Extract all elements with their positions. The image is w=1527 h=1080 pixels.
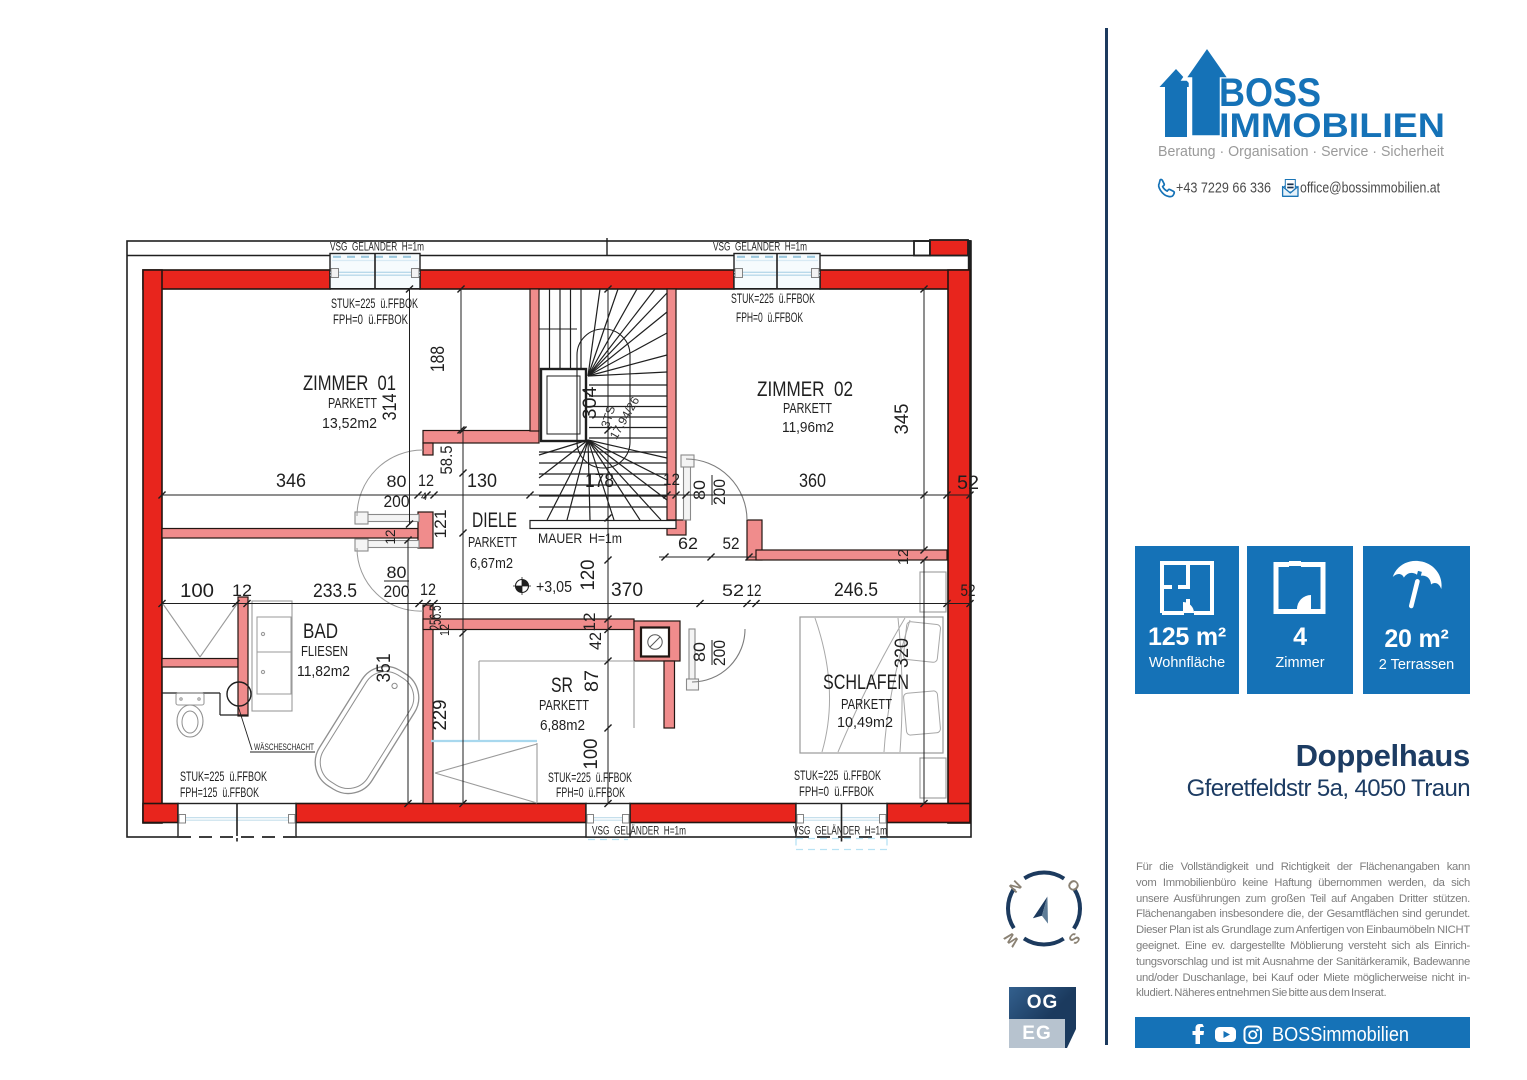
svg-text:O: O (1063, 877, 1082, 896)
svg-text:VSG GELÄNDER H=1m: VSG GELÄNDER H=1m (713, 242, 807, 254)
svg-text:62: 62 (678, 534, 698, 553)
svg-text:PARKETT: PARKETT (328, 396, 377, 412)
svg-text:SR: SR (551, 674, 573, 697)
svg-text:52: 52 (723, 534, 740, 553)
svg-text:233.5: 233.5 (313, 581, 357, 602)
svg-text:+43 7229 66 336: +43 7229 66 336 (1176, 180, 1271, 197)
svg-text:6,88m2: 6,88m2 (540, 718, 585, 734)
svg-text:12: 12 (747, 581, 762, 600)
svg-text:BOSSimmobilien: BOSSimmobilien (1272, 1023, 1409, 1046)
svg-text:IMMOBILIEN: IMMOBILIEN (1219, 107, 1445, 145)
svg-text:FPH=0 ü.FFBOK: FPH=0 ü.FFBOK (333, 312, 408, 327)
svg-text:FPH=0 ü.FFBOK: FPH=0 ü.FFBOK (736, 310, 803, 325)
svg-text:80: 80 (690, 642, 709, 662)
svg-text:10,49m2: 10,49m2 (837, 715, 893, 731)
svg-text:100: 100 (180, 581, 214, 602)
svg-text:345: 345 (892, 404, 913, 435)
svg-text:80: 80 (690, 480, 709, 500)
svg-text:200: 200 (710, 479, 729, 505)
svg-text:178: 178 (585, 471, 614, 492)
svg-text:VSG GELÄNDER H=1m: VSG GELÄNDER H=1m (330, 242, 424, 254)
svg-text:PARKETT: PARKETT (783, 401, 832, 417)
svg-text:188: 188 (428, 346, 449, 372)
svg-text:S: S (1065, 929, 1083, 947)
svg-text:121: 121 (431, 510, 450, 539)
svg-text:PARKETT: PARKETT (539, 698, 589, 714)
svg-text:52: 52 (722, 581, 744, 600)
svg-text:200: 200 (384, 492, 410, 511)
svg-text:MAUER H=1m: MAUER H=1m (538, 531, 622, 546)
svg-text:office@bossimmobilien.at: office@bossimmobilien.at (1300, 180, 1441, 197)
svg-text:12: 12 (663, 470, 680, 489)
svg-text:VSG GELÄNDER H=1m: VSG GELÄNDER H=1m (793, 826, 887, 838)
svg-text:STUK=225 ü.FFBOK: STUK=225 ü.FFBOK (331, 296, 418, 311)
svg-text:87: 87 (582, 670, 603, 692)
svg-text:FPH=0 ü.FFBOK: FPH=0 ü.FFBOK (556, 785, 625, 800)
svg-text:12: 12 (382, 529, 398, 544)
svg-text:12: 12 (420, 580, 436, 599)
svg-text:58.5: 58.5 (437, 446, 456, 475)
svg-text:52: 52 (957, 473, 979, 494)
svg-text:100: 100 (581, 739, 602, 770)
svg-text:52: 52 (961, 581, 976, 600)
svg-text:Beratung · Organisation · Serv: Beratung · Organisation · Service · Sich… (1158, 144, 1444, 160)
svg-text:130: 130 (467, 471, 497, 492)
svg-text:STUK=225 ü.FFBOK: STUK=225 ü.FFBOK (794, 768, 881, 783)
svg-text:13,52m2: 13,52m2 (322, 416, 377, 432)
svg-text:PARKETT: PARKETT (468, 535, 517, 551)
svg-text:12: 12 (580, 613, 599, 632)
svg-text:229: 229 (430, 700, 451, 731)
svg-text:200: 200 (384, 582, 410, 601)
svg-text:STUK=225 ü.FFBOK: STUK=225 ü.FFBOK (548, 770, 632, 785)
svg-text:STUK=225 ü.FFBOK: STUK=225 ü.FFBOK (180, 769, 267, 784)
svg-text:VSG GELÄNDER H=1m: VSG GELÄNDER H=1m (592, 826, 686, 838)
svg-text:ZIMMER 02: ZIMMER 02 (757, 378, 853, 401)
svg-text:SCHLAFEN: SCHLAFEN (823, 671, 909, 694)
svg-text:120: 120 (578, 560, 599, 591)
svg-text:42: 42 (586, 632, 605, 650)
svg-text:320: 320 (892, 638, 913, 668)
svg-text:11,82m2: 11,82m2 (297, 664, 350, 680)
svg-text:DIELE: DIELE (472, 509, 517, 532)
svg-text:12: 12 (437, 624, 452, 636)
svg-text:+3,05: +3,05 (536, 579, 572, 596)
svg-text:200: 200 (710, 640, 729, 666)
svg-text:4: 4 (421, 491, 427, 503)
svg-text:370: 370 (611, 580, 643, 601)
svg-text:11,96m2: 11,96m2 (782, 420, 834, 436)
svg-text:246.5: 246.5 (834, 580, 878, 601)
svg-text:ZIMMER 01: ZIMMER 01 (303, 372, 396, 395)
svg-text:80: 80 (387, 472, 407, 491)
svg-text:314: 314 (380, 393, 401, 420)
svg-text:PARKETT: PARKETT (841, 697, 892, 713)
svg-text:FLIESEN: FLIESEN (301, 644, 348, 660)
svg-text:80: 80 (387, 563, 407, 582)
svg-text:346: 346 (276, 471, 306, 492)
svg-text:W: W (1001, 928, 1022, 949)
svg-text:STUK=225 ü.FFBOK: STUK=225 ü.FFBOK (731, 291, 815, 306)
svg-text:FPH=0 ü.FFBOK: FPH=0 ü.FFBOK (799, 784, 874, 799)
svg-text:12: 12 (232, 581, 252, 600)
svg-text:WÄSCHESCHACHT: WÄSCHESCHACHT (254, 742, 314, 753)
svg-text:12: 12 (895, 549, 912, 565)
svg-text:360: 360 (799, 471, 826, 492)
svg-text:351: 351 (374, 654, 395, 683)
svg-text:BAD: BAD (303, 620, 338, 643)
svg-text:12: 12 (418, 471, 434, 490)
svg-text:6,67m2: 6,67m2 (470, 556, 513, 572)
svg-text:304: 304 (580, 386, 601, 419)
svg-text:FPH=125 ü.FFBOK: FPH=125 ü.FFBOK (180, 785, 259, 800)
